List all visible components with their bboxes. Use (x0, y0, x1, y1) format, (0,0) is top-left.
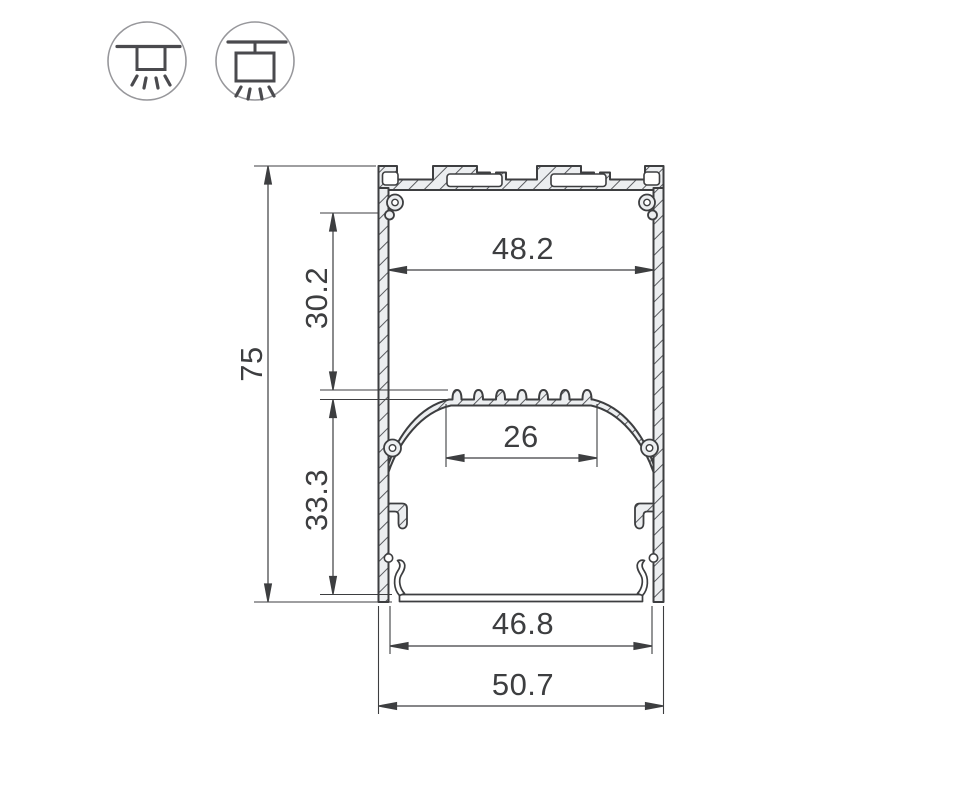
arrowhead (379, 703, 397, 710)
clip-hook-right (635, 504, 654, 529)
dimension-label: 26 (503, 419, 538, 454)
diffuser-groove-right (649, 554, 657, 562)
dimension-label: 46.8 (492, 606, 554, 641)
technical-drawing: 75 30.2 33.3 48.2 (0, 0, 978, 800)
dimension-label: 30.2 (299, 267, 334, 329)
t-slot-pocket (551, 174, 606, 187)
screw-boss-mid-left (384, 440, 401, 457)
surface-mount-icon (108, 22, 186, 100)
dimension-led-platform-width: 26 (446, 404, 597, 467)
mount-icons (108, 22, 294, 100)
arrowhead (330, 372, 337, 390)
t-slot-pocket (447, 174, 502, 187)
drawing-canvas: 75 30.2 33.3 48.2 (0, 0, 978, 800)
diffuser-groove-left (384, 554, 392, 562)
dimension-label: 50.7 (492, 667, 554, 702)
arrowhead (579, 455, 597, 462)
clip-hook-left (389, 504, 408, 529)
dimension-upper-section-height: 30.2 (299, 213, 448, 390)
arrowhead (265, 584, 272, 602)
diffuser-curl-right (637, 560, 647, 595)
diffuser-plate (400, 595, 643, 602)
dimension-inner-width-bottom: 46.8 (390, 606, 652, 654)
arrowhead (389, 267, 407, 274)
screw-boss-top-left (385, 195, 403, 220)
t-slot-pocket (383, 172, 399, 185)
arrowhead (634, 643, 652, 650)
arrowhead (330, 577, 337, 595)
icon-circle (216, 22, 294, 100)
arrowhead (330, 213, 337, 231)
top-mounting-plate (379, 166, 664, 190)
dimension-label: 48.2 (492, 231, 554, 266)
screw-boss-top-right (639, 195, 657, 220)
diffuser-curl-left (395, 560, 405, 595)
t-slot-pocket (644, 172, 660, 185)
dimension-lower-section-height: 33.3 (299, 400, 449, 595)
dimension-label: 33.3 (299, 469, 334, 531)
dimension-label: 75 (234, 346, 269, 381)
arrowhead (390, 643, 408, 650)
pendant-mount-icon (216, 22, 294, 100)
arrowhead (330, 400, 337, 418)
left-wall (379, 188, 389, 602)
arrowhead (446, 455, 464, 462)
icon-circle (108, 22, 186, 100)
dimension-inner-width-top: 48.2 (389, 231, 654, 273)
arrowhead (646, 703, 664, 710)
arrowhead (265, 166, 272, 184)
dimensions: 75 30.2 33.3 48.2 (234, 166, 664, 714)
right-wall (654, 188, 664, 602)
dimension-overall-height: 75 (234, 166, 392, 602)
diffuser (395, 560, 648, 601)
screw-boss-mid-right (641, 440, 658, 457)
arrowhead (636, 267, 654, 274)
